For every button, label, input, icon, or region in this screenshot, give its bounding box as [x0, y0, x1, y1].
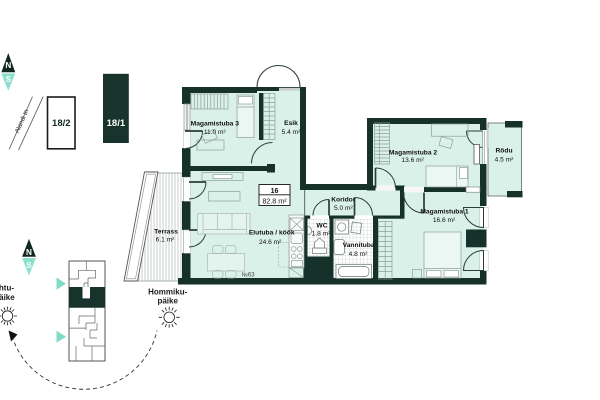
svg-text:4.8 m²: 4.8 m² [349, 251, 368, 258]
svg-text:N: N [26, 248, 32, 257]
svg-text:5.4 m²: 5.4 m² [282, 129, 301, 136]
svg-text:Magamistuba 2: Magamistuba 2 [389, 150, 438, 157]
svg-text:4.5 m²: 4.5 m² [495, 157, 514, 164]
svg-text:13.6 m²: 13.6 m² [401, 157, 424, 164]
svg-text:16.6 m²: 16.6 m² [433, 217, 456, 224]
svg-text:Magamistuba 3: Magamistuba 3 [191, 120, 240, 127]
svg-text:1.8 m²: 1.8 m² [312, 230, 331, 237]
svg-text:18/2: 18/2 [52, 118, 71, 129]
svg-text:24.6 m²: 24.6 m² [259, 239, 282, 246]
svg-text:Magamistuba 1: Magamistuba 1 [420, 208, 469, 215]
svg-text:18/1: 18/1 [107, 118, 126, 129]
svg-text:N: N [5, 61, 11, 70]
svg-text:№63: №63 [241, 272, 255, 279]
svg-text:Terrass: Terrass [154, 229, 178, 236]
svg-text:Rõdu: Rõdu [495, 148, 512, 155]
svg-text:6.1 m²: 6.1 m² [156, 237, 175, 244]
svg-text:Koridor: Koridor [331, 197, 356, 204]
svg-text:Hommiku-: Hommiku- [148, 288, 187, 297]
svg-text:82.8 m²: 82.8 m² [262, 196, 287, 205]
svg-text:WC: WC [316, 223, 327, 230]
svg-text:16: 16 [271, 188, 279, 195]
svg-text:Õhtu-: Õhtu- [0, 283, 14, 292]
svg-text:Vannituba: Vannituba [343, 242, 375, 249]
svg-text:Esik: Esik [284, 120, 298, 127]
svg-text:11.0 m²: 11.0 m² [204, 129, 227, 136]
svg-text:päike: päike [157, 297, 178, 306]
svg-text:S: S [6, 75, 12, 84]
svg-text:päike: päike [0, 293, 15, 302]
svg-text:5.0 m²: 5.0 m² [334, 205, 353, 212]
svg-text:Elutuba / köök: Elutuba / köök [249, 230, 295, 237]
svg-text:S: S [26, 261, 32, 270]
